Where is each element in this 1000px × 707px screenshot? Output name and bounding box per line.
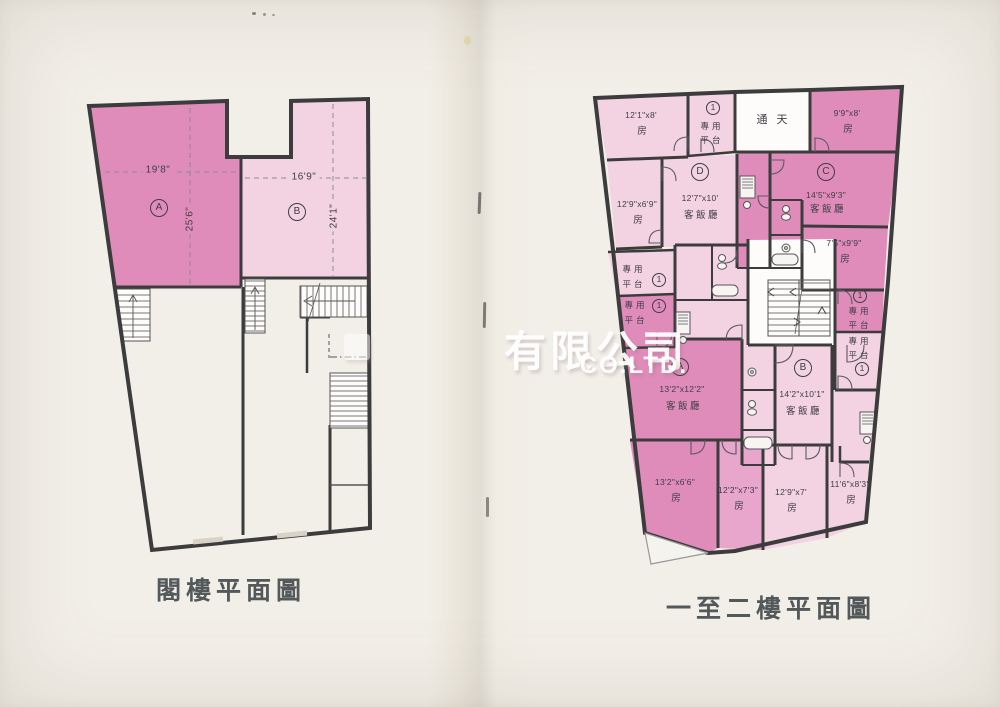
dim-b-width: 16'9" [289, 172, 320, 183]
unit-d-type: 客飯廳 [684, 207, 720, 221]
platform-label: 平台 [848, 319, 871, 331]
bedroom-type: 房 [846, 492, 858, 506]
bathtub-icon [712, 285, 738, 296]
bedroom-type: 房 [840, 251, 852, 265]
platform-label: 平台 [848, 349, 871, 361]
washbasin-icon [782, 244, 790, 252]
unit-d-marker: D [691, 163, 709, 181]
left-plan [89, 99, 370, 550]
bedroom-type: 房 [787, 500, 799, 514]
scanned-floor-plan-page: 19'8" A 25'6" 16'9" B 24'1" 12'1"x8' 房 1… [0, 0, 1000, 707]
unit-b-marker: B [794, 359, 812, 377]
bathtub-icon [744, 437, 772, 449]
dim-b-depth: 24'1" [329, 201, 340, 232]
platform-label: 專用 [700, 120, 723, 132]
unit-b-type: 客飯廳 [786, 403, 822, 417]
left-room-b-fill [241, 99, 368, 278]
platform-number: 1 [853, 289, 867, 303]
bedroom-type: 房 [637, 123, 649, 137]
platform-label: 平台 [700, 134, 723, 146]
unit-a-marker: A [671, 358, 689, 376]
platform-number: 1 [652, 299, 666, 313]
bedroom-dims: 12'9"x6'9" [617, 199, 657, 209]
unit-c-type: 客飯廳 [810, 201, 846, 215]
bathtub-icon [772, 254, 798, 265]
dim-a-width: 19'8" [143, 165, 174, 176]
platform-label: 平台 [622, 278, 645, 290]
bedroom-dims: 12'1"x8' [625, 110, 657, 120]
unit-b-dims: 14'2"x10'1" [779, 389, 824, 399]
bedroom-type: 房 [843, 121, 855, 135]
skylight-label: 通天 [748, 111, 797, 127]
platform-number: 1 [652, 273, 666, 287]
washbasin-icon [748, 368, 756, 376]
platform-label: 專用 [624, 299, 647, 311]
bedroom-dims: 12'9"x7' [775, 487, 807, 497]
platform-number: 1 [855, 362, 869, 376]
bedroom-type: 房 [671, 490, 683, 504]
unit-a-type: 客飯廳 [666, 398, 702, 412]
bedroom-dims: 13'2"x6'6" [655, 477, 695, 487]
unit-a-dims: 13'2"x12'2" [659, 384, 704, 394]
bedroom-type: 房 [633, 212, 645, 226]
right-plan-caption: 一至二樓平面圖 [666, 589, 876, 625]
platform-label: 專用 [622, 263, 645, 275]
right-plan-stair [768, 280, 830, 336]
bedroom-dims: 11'6"x8'3" [830, 479, 870, 489]
bedroom-dims: 12'2"x7'3" [718, 485, 758, 495]
unit-c-dims: 14'5"x9'3" [806, 190, 846, 200]
bedroom-dims: 7'5"x9'9" [826, 238, 861, 248]
left-plan-caption: 閣樓平面圖 [156, 571, 306, 607]
unit-a-marker: A [150, 199, 168, 217]
unit-b-marker: B [288, 203, 306, 221]
bedroom-type: 房 [734, 498, 746, 512]
dim-a-depth: 25'6" [185, 204, 196, 235]
unit-d-dims: 12'7"x10' [682, 193, 719, 203]
platform-label: 平台 [624, 314, 647, 326]
platform-number: 1 [706, 101, 720, 115]
platform-label: 專用 [848, 305, 871, 317]
bedroom-dims: 9'9"x8' [834, 108, 861, 118]
unit-c-marker: C [817, 163, 835, 181]
platform-label: 專用 [848, 335, 871, 347]
